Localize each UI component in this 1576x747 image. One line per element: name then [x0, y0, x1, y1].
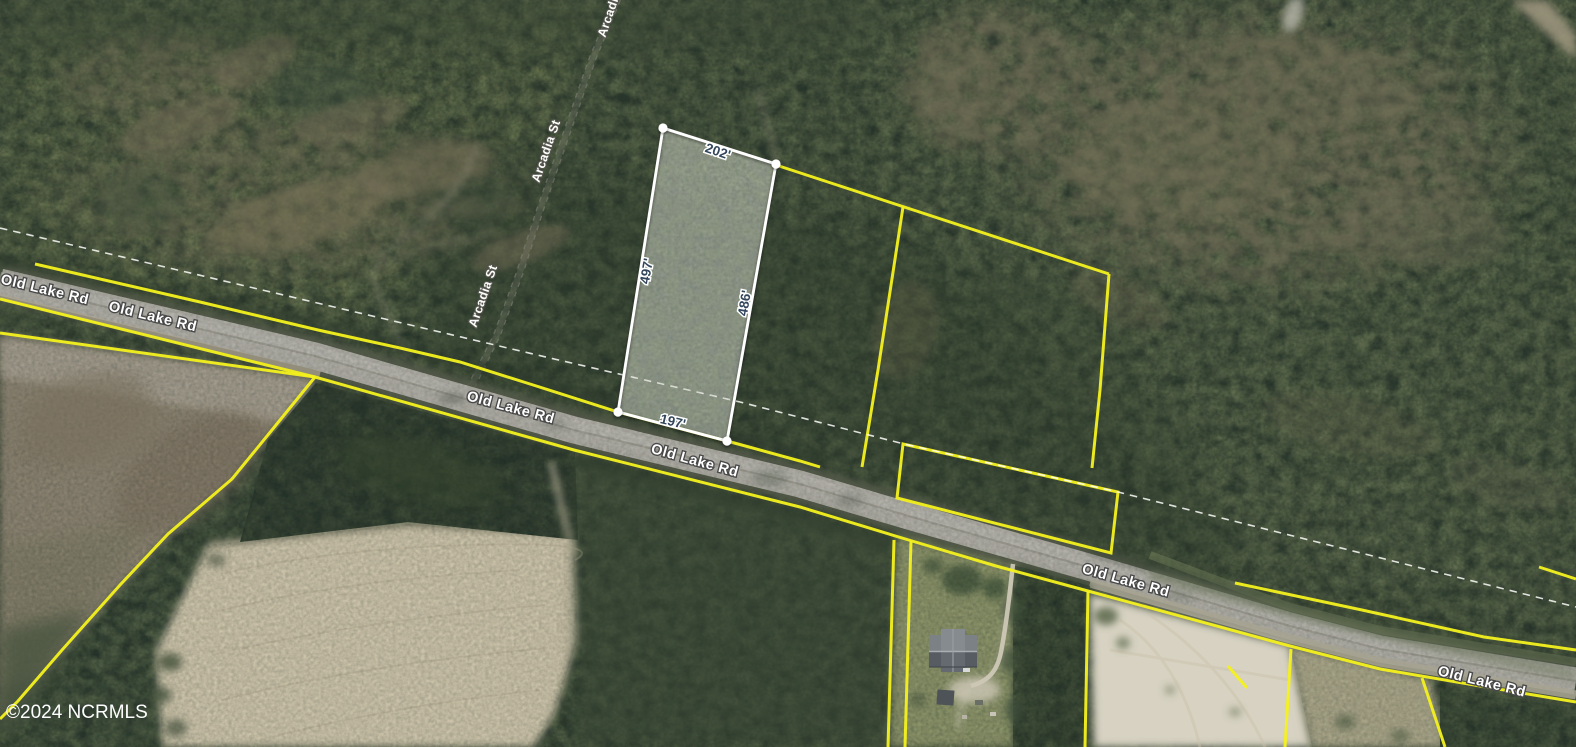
svg-text:©2024 NCRMLS: ©2024 NCRMLS	[6, 702, 148, 723]
